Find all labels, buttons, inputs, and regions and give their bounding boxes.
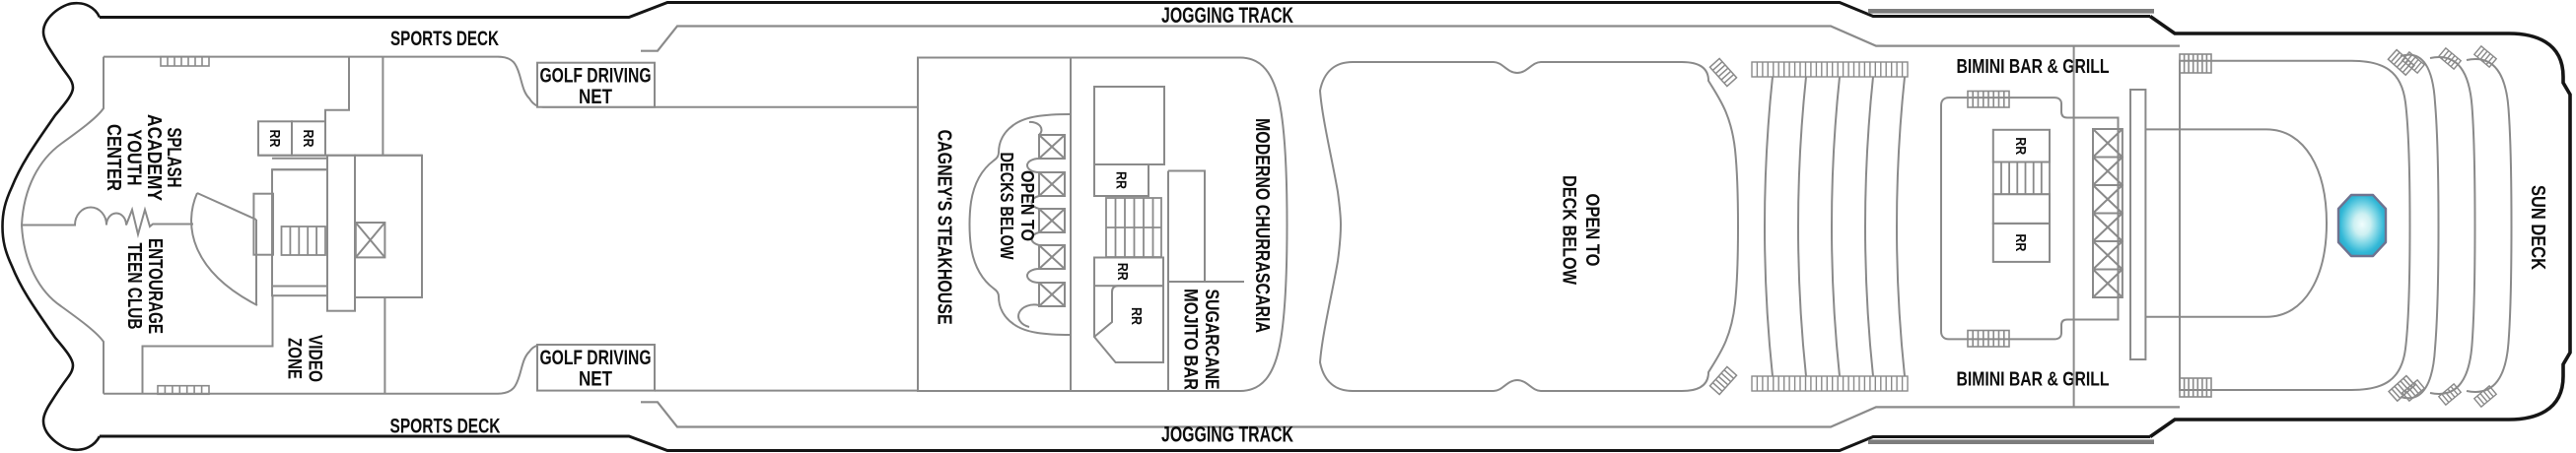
svg-text:JOGGING TRACK: JOGGING TRACK <box>1161 3 1293 28</box>
svg-text:DECKS BELOW: DECKS BELOW <box>997 153 1017 260</box>
svg-text:RR: RR <box>1114 263 1131 281</box>
svg-text:CENTER: CENTER <box>103 124 124 191</box>
svg-text:CAGNEY'S STEAKHOUSE: CAGNEY'S STEAKHOUSE <box>934 130 955 325</box>
svg-text:RR: RR <box>300 130 316 148</box>
svg-text:SUN DECK: SUN DECK <box>2527 185 2548 270</box>
svg-text:RR: RR <box>1128 307 1145 325</box>
svg-text:OPEN TO: OPEN TO <box>1581 194 1602 267</box>
svg-text:JOGGING TRACK: JOGGING TRACK <box>1161 422 1293 447</box>
svg-text:NET: NET <box>579 367 612 390</box>
svg-text:GOLF DRIVING: GOLF DRIVING <box>540 347 652 369</box>
svg-text:MODERNO CHURRASCARIA: MODERNO CHURRASCARIA <box>1251 118 1273 333</box>
svg-text:RR: RR <box>2012 233 2029 251</box>
svg-text:ENTOURAGE: ENTOURAGE <box>144 238 166 334</box>
svg-text:VIDEO: VIDEO <box>305 335 325 382</box>
svg-text:SPORTS DECK: SPORTS DECK <box>390 28 499 50</box>
svg-text:BIMINI BAR & GRILL: BIMINI BAR & GRILL <box>1957 369 2110 391</box>
svg-text:NET: NET <box>579 86 612 108</box>
svg-text:RR: RR <box>1112 171 1129 189</box>
svg-text:RR: RR <box>2012 137 2029 155</box>
svg-text:SPORTS DECK: SPORTS DECK <box>390 416 501 438</box>
svg-text:TEEN CLUB: TEEN CLUB <box>123 243 145 330</box>
svg-text:DECK BELOW: DECK BELOW <box>1558 175 1578 285</box>
svg-text:OPEN TO: OPEN TO <box>1017 170 1038 241</box>
svg-text:SPLASH: SPLASH <box>163 128 184 188</box>
svg-text:ACADEMY: ACADEMY <box>143 114 165 202</box>
svg-text:BIMINI BAR & GRILL: BIMINI BAR & GRILL <box>1957 56 2110 78</box>
svg-text:RR: RR <box>266 130 283 148</box>
svg-text:GOLF DRIVING: GOLF DRIVING <box>540 64 652 87</box>
svg-text:ZONE: ZONE <box>284 338 305 379</box>
svg-text:MOJITO BAR: MOJITO BAR <box>1179 289 1200 390</box>
svg-text:SUGARCANE: SUGARCANE <box>1201 290 1221 390</box>
svg-text:YOUTH: YOUTH <box>123 130 145 186</box>
